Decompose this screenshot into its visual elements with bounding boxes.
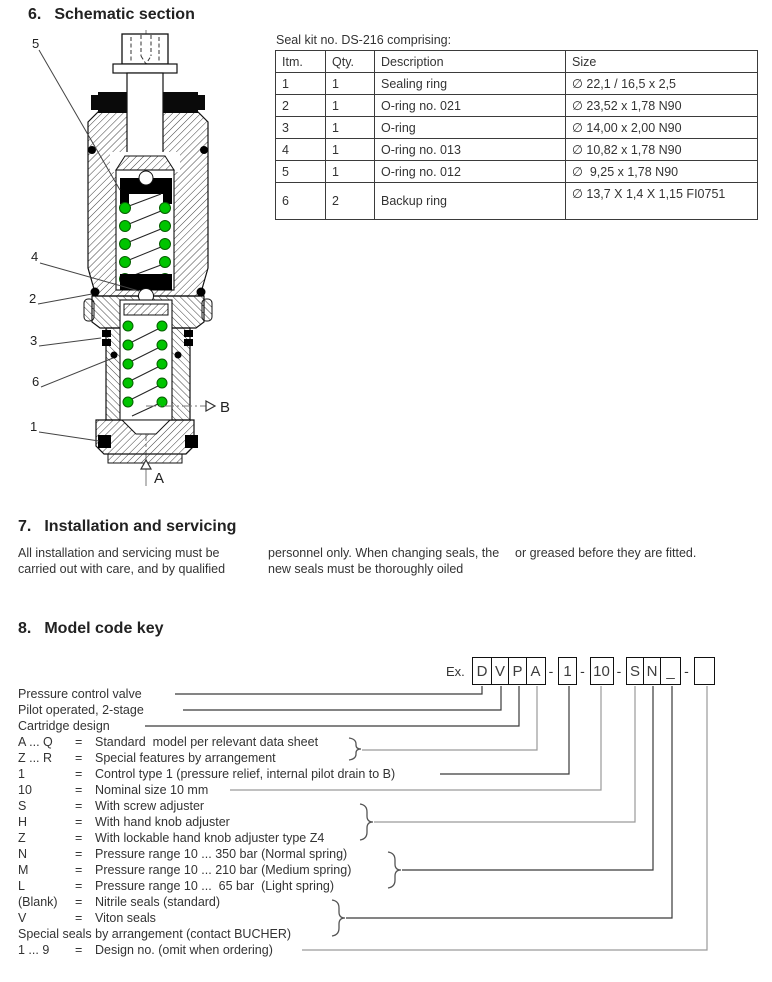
cell-desc: Sealing ring <box>375 73 566 95</box>
main-stage <box>120 300 172 434</box>
callout-3: 3 <box>30 333 37 348</box>
cell-qty: 1 <box>326 95 375 117</box>
code-dash: - <box>680 663 694 679</box>
model-row-standard-model: A ... Q=Standard model per relevant data… <box>18 734 318 750</box>
cell-size: ∅ 13,7 X 1,4 X 1,15 FI0751 <box>566 183 758 220</box>
section6-number: 6. <box>28 6 41 24</box>
section8-title: Model code key <box>44 620 163 638</box>
cell-size: ∅ 14,00 x 2,00 N90 <box>566 117 758 139</box>
cell-itm: 6 <box>276 183 326 220</box>
valve-schematic: B A 5 4 2 3 6 1 <box>10 28 260 488</box>
port-a-arrow: A <box>141 460 164 487</box>
col-header-size: Size <box>566 51 758 73</box>
section8-heading: 8. Model code key <box>18 620 164 638</box>
cell-size: ∅ 10,82 x 1,78 N90 <box>566 139 758 161</box>
cell-desc: O-ring no. 021 <box>375 95 566 117</box>
row-code: Z ... R <box>18 750 75 766</box>
model-code-boxes: D V P A - 1 - 10 - S N _ - <box>472 657 715 685</box>
cell-qty: 1 <box>326 139 375 161</box>
datasheet-page: 6. Schematic section <box>0 0 772 982</box>
model-row-pilot-operated: Pilot operated, 2-stage <box>18 702 164 718</box>
row-code: V <box>18 910 75 926</box>
cell-itm: 4 <box>276 139 326 161</box>
row-code: N <box>18 846 75 862</box>
row-code: 1 ... 9 <box>18 942 75 958</box>
row-code: A ... Q <box>18 734 75 750</box>
section7-col1: All installation and servicing must be c… <box>18 545 256 577</box>
cell-itm: 3 <box>276 117 326 139</box>
table-row: 6 2 Backup ring ∅ 13,7 X 1,4 X 1,15 FI07… <box>276 183 758 220</box>
code-box-design <box>694 657 715 685</box>
cell-size: ∅ 22,1 / 16,5 x 2,5 <box>566 73 758 95</box>
model-row-normal-spring: N=Pressure range 10 ... 350 bar (Normal … <box>18 846 347 862</box>
cell-itm: 5 <box>276 161 326 183</box>
model-row-medium-spring: M=Pressure range 10 ... 210 bar (Medium … <box>18 862 351 878</box>
seal-kit-table: Itm. Qty. Description Size 1 1 Sealing r… <box>275 50 758 220</box>
row-code: M <box>18 862 75 878</box>
table-header-row: Itm. Qty. Description Size <box>276 51 758 73</box>
table-row: 5 1 O-ring no. 012 ∅ 9,25 x 1,78 N90 <box>276 161 758 183</box>
cell-itm: 2 <box>276 95 326 117</box>
table-row: 3 1 O-ring ∅ 14,00 x 2,00 N90 <box>276 117 758 139</box>
cell-itm: 1 <box>276 73 326 95</box>
cell-qty: 2 <box>326 183 375 220</box>
port-a-label: A <box>154 470 164 487</box>
section7-heading: 7. Installation and servicing <box>18 518 236 536</box>
port-b-label: B <box>220 399 230 416</box>
code-box-s: S <box>626 657 644 685</box>
cell-desc: O-ring no. 012 <box>375 161 566 183</box>
code-dash: - <box>576 663 590 679</box>
row-code: Z <box>18 830 75 846</box>
code-box-10: 10 <box>590 657 614 685</box>
callout-2: 2 <box>29 291 36 306</box>
callout-6: 6 <box>32 374 39 389</box>
row-code: 1 <box>18 766 75 782</box>
row-code: S <box>18 798 75 814</box>
model-row-nominal-size: 10=Nominal size 10 mm <box>18 782 208 798</box>
code-box-n: N <box>643 657 662 685</box>
callout-1: 1 <box>30 419 37 434</box>
code-dash: - <box>612 663 626 679</box>
table-row: 4 1 O-ring no. 013 ∅ 10,82 x 1,78 N90 <box>276 139 758 161</box>
section6-heading: 6. Schematic section <box>28 6 195 24</box>
section7-number: 7. <box>18 518 31 536</box>
row-label: Pressure control valve <box>18 686 142 702</box>
model-row-control-type: 1=Control type 1 (pressure relief, inter… <box>18 766 395 782</box>
section6-title: Schematic section <box>54 6 195 24</box>
cell-qty: 1 <box>326 161 375 183</box>
model-row-light-spring: L=Pressure range 10 ... 65 bar (Light sp… <box>18 878 334 894</box>
cell-desc: O-ring no. 013 <box>375 139 566 161</box>
pilot-stage <box>110 152 180 290</box>
code-box-blank-seal: _ <box>660 657 681 685</box>
section7-col2: personnel only. When changing seals, the… <box>268 545 503 577</box>
model-row-screw-adjuster: S=With screw adjuster <box>18 798 204 814</box>
row-code: L <box>18 878 75 894</box>
model-row-pressure-control-valve: Pressure control valve <box>18 686 162 702</box>
cell-size: ∅ 23,52 x 1,78 N90 <box>566 95 758 117</box>
code-box-p: P <box>508 657 527 685</box>
col-header-qty: Qty. <box>326 51 375 73</box>
section7-body: All installation and servicing must be c… <box>18 545 760 577</box>
section8-number: 8. <box>18 620 31 638</box>
callout-4: 4 <box>31 249 38 264</box>
model-row-design-no: 1 ... 9=Design no. (omit when ordering) <box>18 942 273 958</box>
row-label: Cartridge design <box>18 718 110 734</box>
code-box-v: V <box>491 657 510 685</box>
code-box-d: D <box>472 657 492 685</box>
col-header-desc: Description <box>375 51 566 73</box>
row-code: 10 <box>18 782 75 798</box>
model-row-lockable-knob: Z=With lockable hand knob adjuster type … <box>18 830 324 846</box>
seal-kit-title: Seal kit no. DS-216 comprising: <box>276 33 451 47</box>
example-label: Ex. <box>446 664 465 679</box>
cell-size: ∅ 9,25 x 1,78 N90 <box>566 161 758 183</box>
table-row: 1 1 Sealing ring ∅ 22,1 / 16,5 x 2,5 <box>276 73 758 95</box>
cell-qty: 1 <box>326 73 375 95</box>
row-code: (Blank) <box>18 894 75 910</box>
model-row-nitrile-seals: (Blank)=Nitrile seals (standard) <box>18 894 220 910</box>
table-row: 2 1 O-ring no. 021 ∅ 23,52 x 1,78 N90 <box>276 95 758 117</box>
code-box-1: 1 <box>558 657 577 685</box>
code-dash: - <box>544 663 558 679</box>
model-row-special-features: Z ... R=Special features by arrangement <box>18 750 276 766</box>
code-box-a: A <box>526 657 546 685</box>
col-header-itm: Itm. <box>276 51 326 73</box>
model-row-hand-knob: H=With hand knob adjuster <box>18 814 230 830</box>
callout-5: 5 <box>32 36 39 51</box>
model-row-cartridge-design: Cartridge design <box>18 718 130 734</box>
section7-title: Installation and servicing <box>44 518 236 536</box>
row-label: Pilot operated, 2-stage <box>18 702 144 718</box>
cell-desc: Backup ring <box>375 183 566 220</box>
cell-desc: O-ring <box>375 117 566 139</box>
section7-col3: or greased before they are fitted. <box>515 545 760 577</box>
model-row-viton-seals: V=Viton seals <box>18 910 156 926</box>
row-label: Special seals by arrangement (contact BU… <box>18 926 291 942</box>
row-code: H <box>18 814 75 830</box>
model-row-special-seals: Special seals by arrangement (contact BU… <box>18 926 311 942</box>
cell-qty: 1 <box>326 117 375 139</box>
